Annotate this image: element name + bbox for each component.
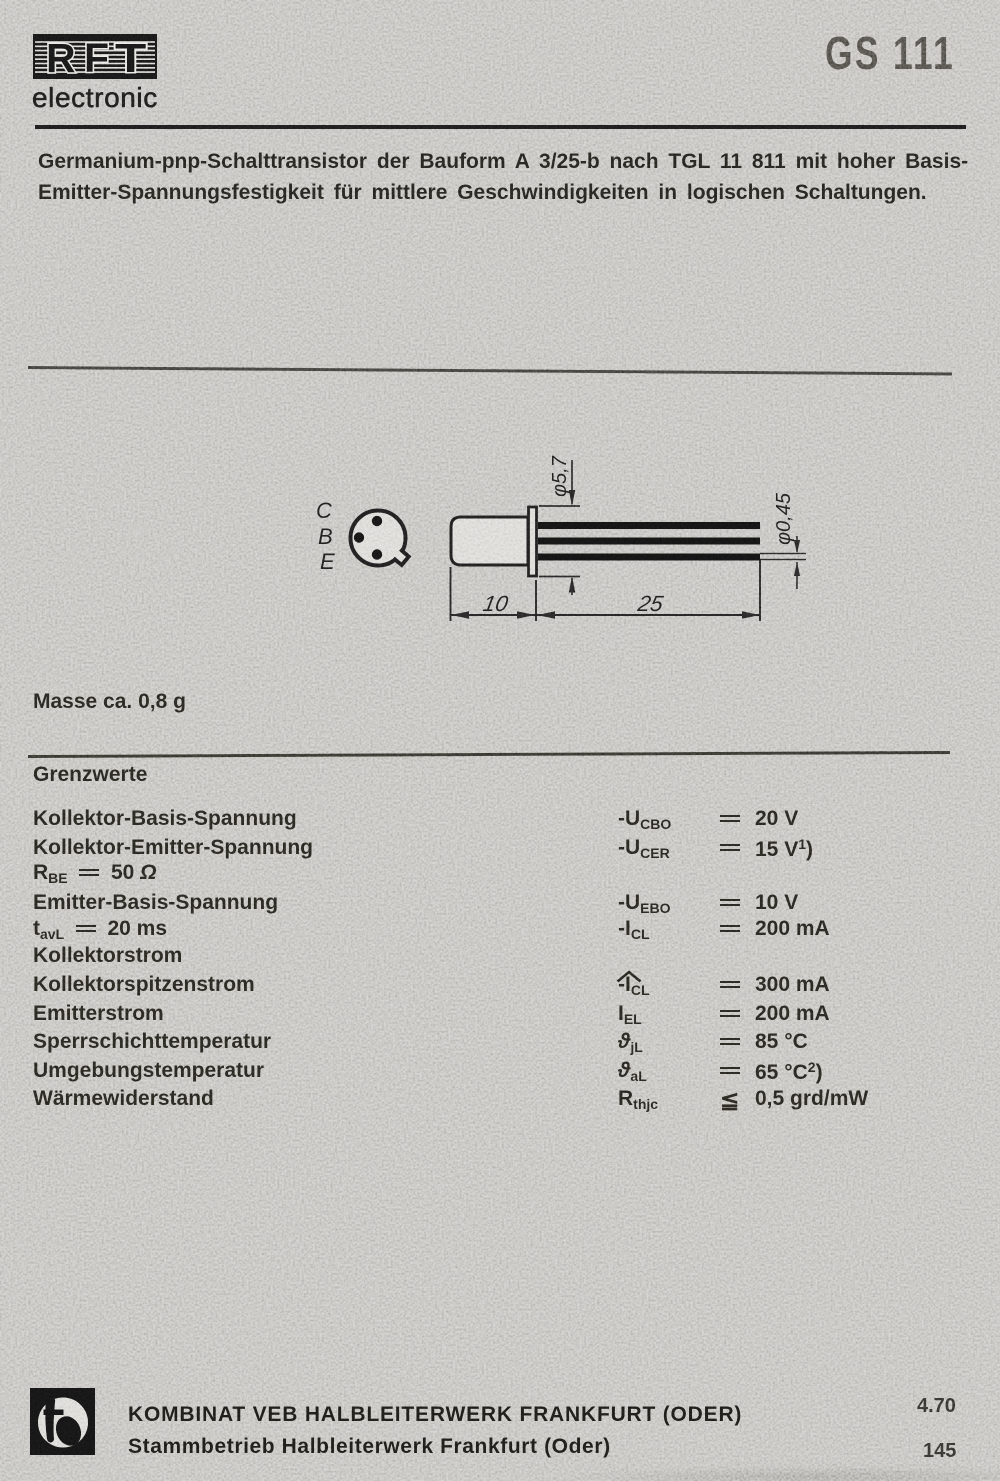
svg-text:C: C: [316, 498, 332, 523]
svg-text:φ0,45: φ0,45: [773, 492, 795, 545]
svg-text:R: R: [46, 35, 76, 79]
svg-text:B: B: [318, 524, 333, 549]
svg-text:F: F: [84, 35, 109, 79]
svg-text:25: 25: [635, 591, 665, 616]
svg-text:T: T: [115, 35, 146, 79]
svg-text:E: E: [320, 549, 335, 574]
svg-text:10: 10: [481, 591, 511, 616]
svg-text:φ5,7: φ5,7: [549, 455, 571, 497]
